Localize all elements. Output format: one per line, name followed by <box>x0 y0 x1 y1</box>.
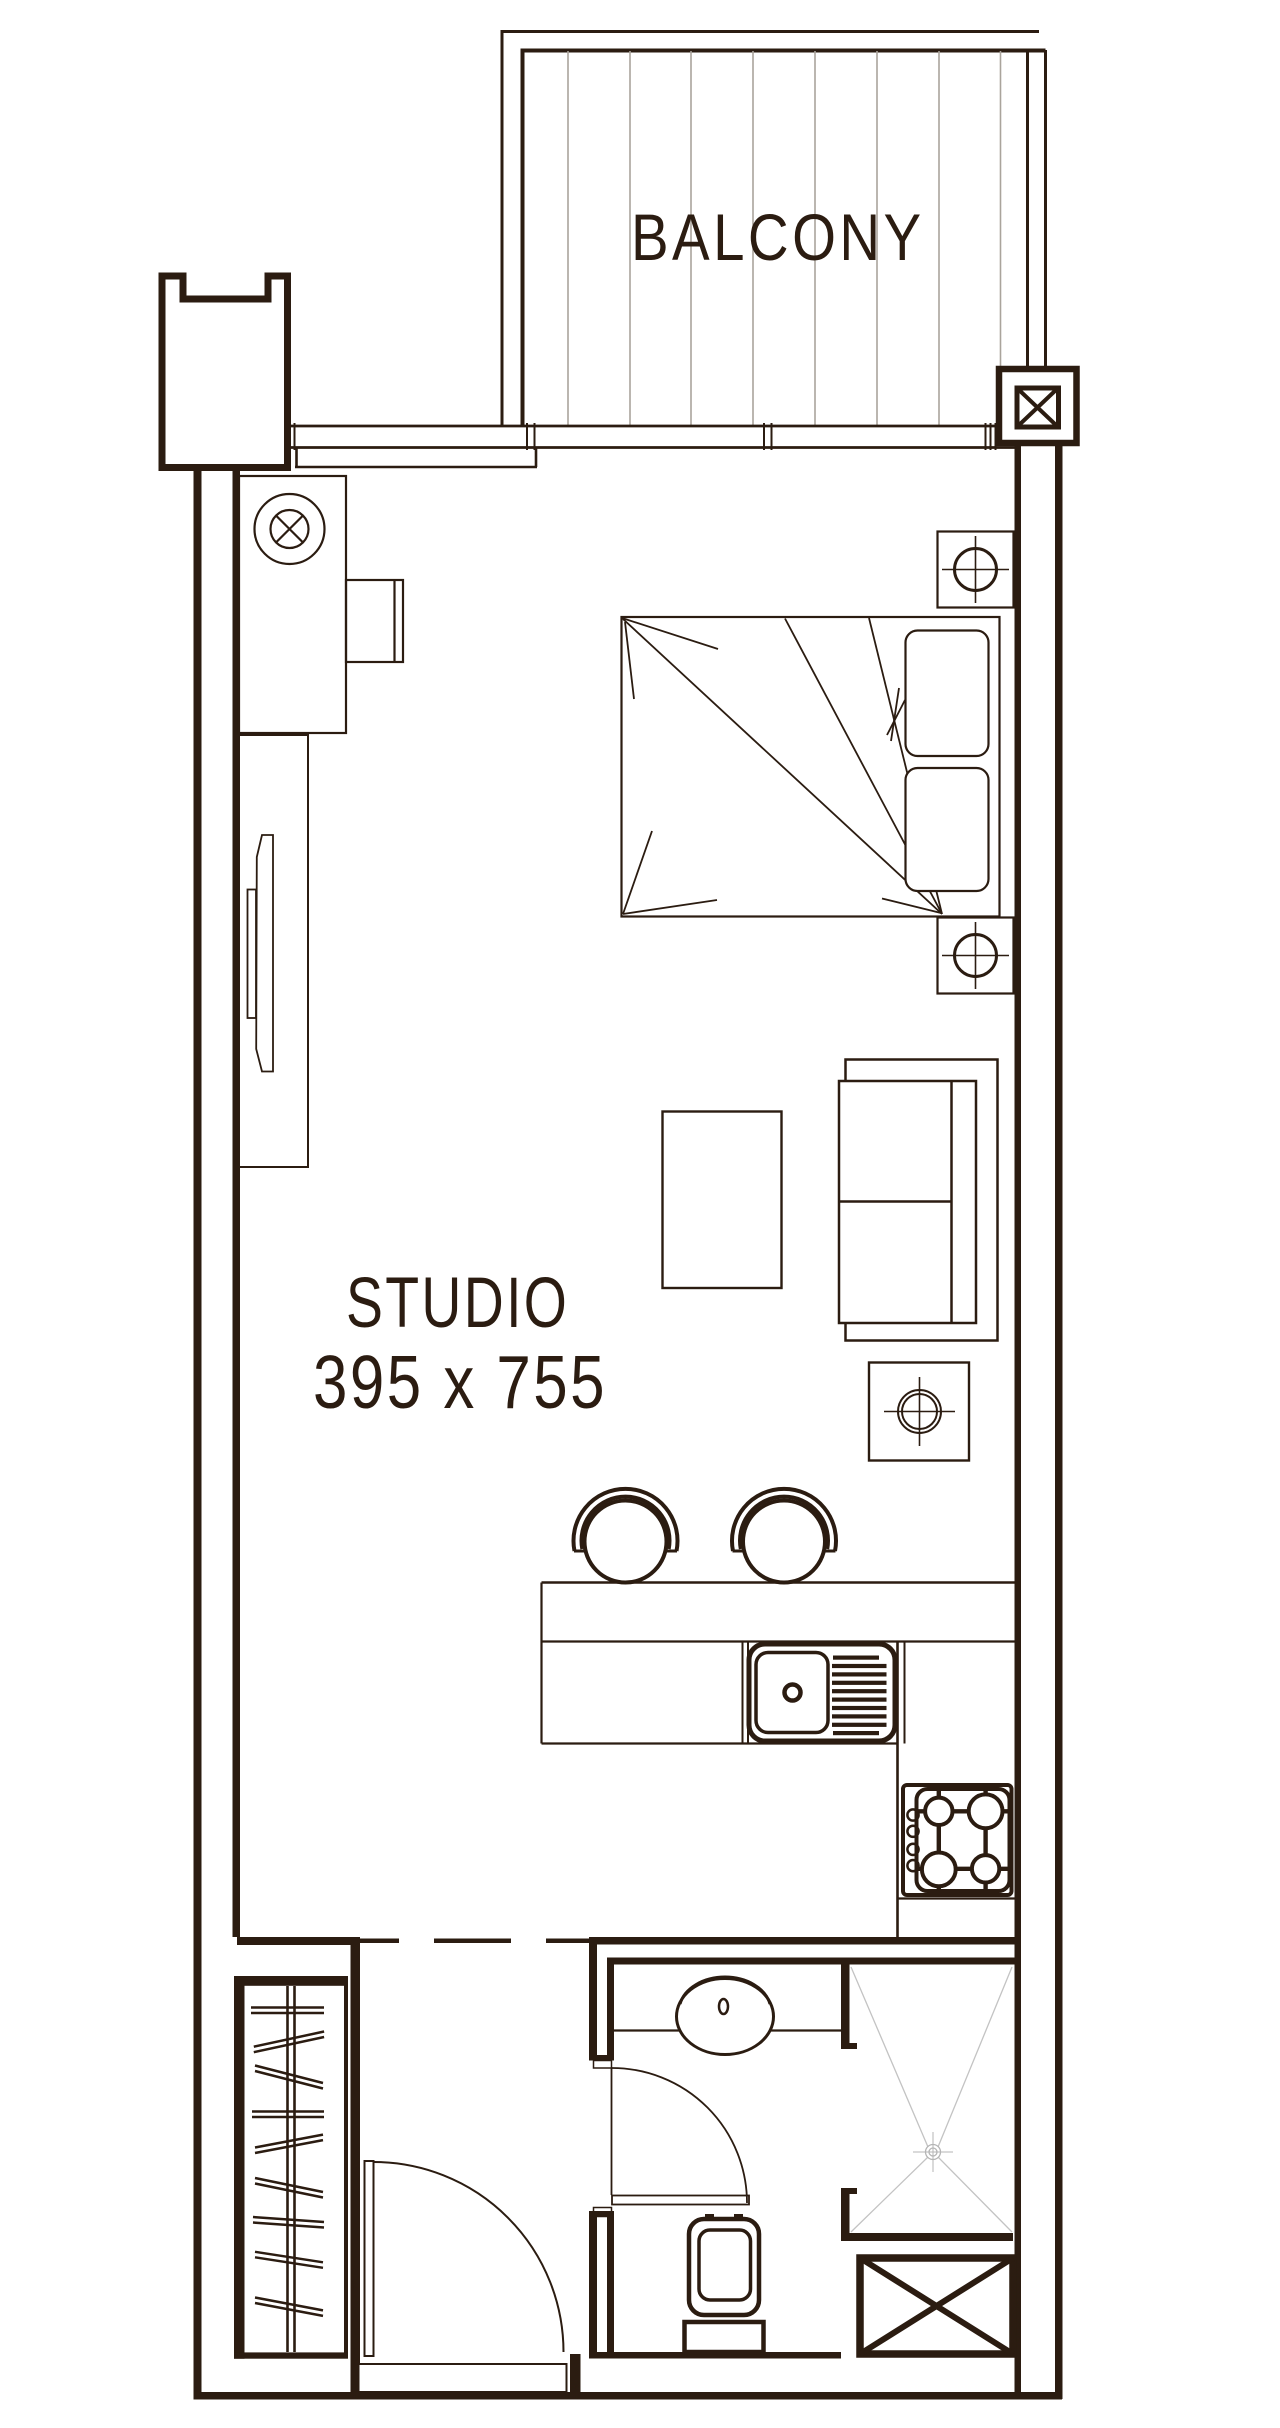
svg-text:395 x 755: 395 x 755 <box>313 1340 607 1424</box>
svg-text:BALCONY: BALCONY <box>631 201 925 275</box>
svg-text:STUDIO: STUDIO <box>346 1263 569 1342</box>
